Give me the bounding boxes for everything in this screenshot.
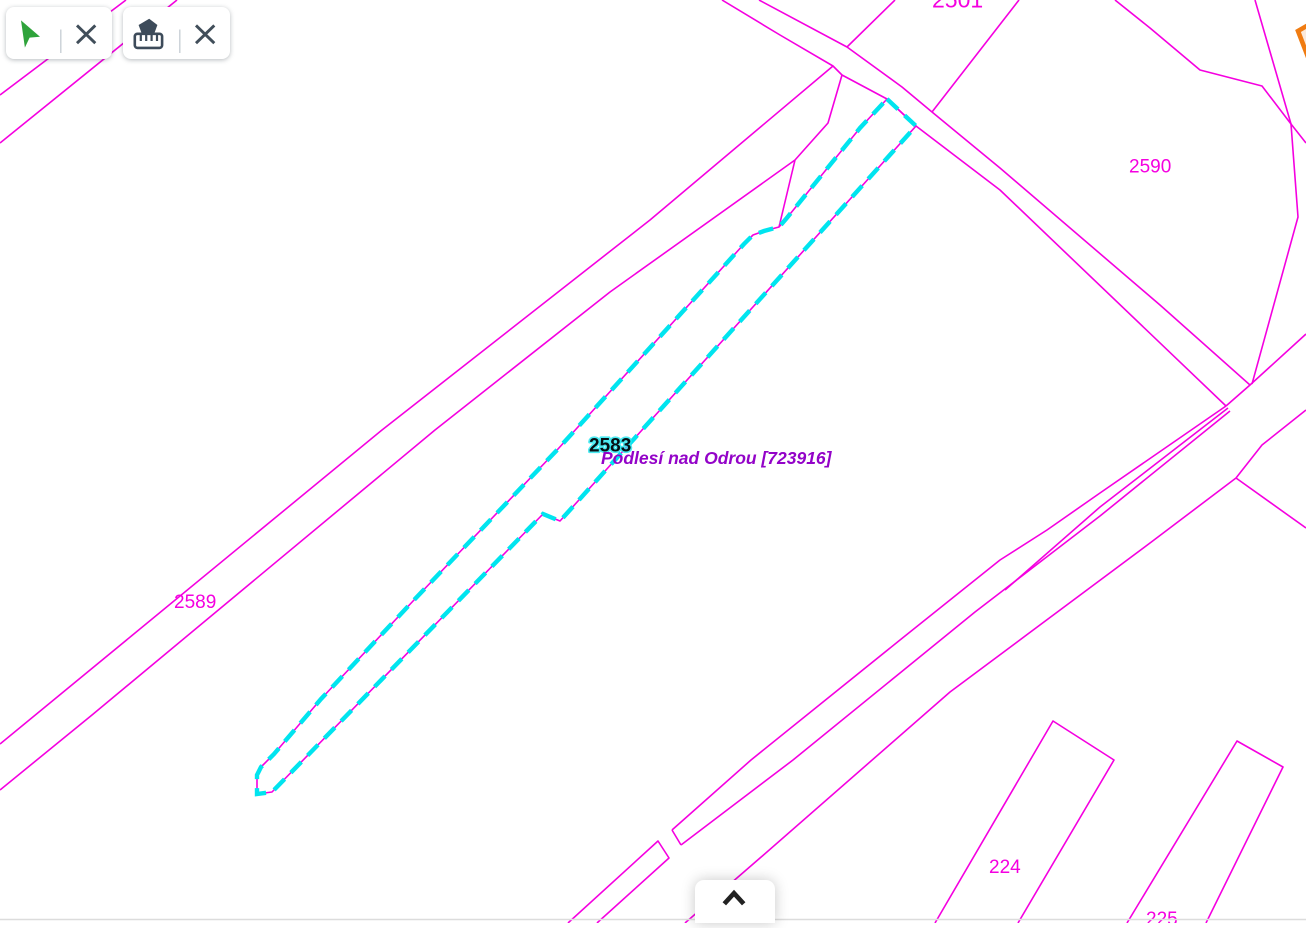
svg-text:Podlesí nad Odrou [723916]: Podlesí nad Odrou [723916] — [601, 448, 833, 468]
svg-text:2590: 2590 — [1129, 157, 1171, 178]
svg-text:225: 225 — [1146, 909, 1178, 923]
svg-text:2501: 2501 — [932, 0, 983, 13]
svg-text:2589: 2589 — [174, 592, 216, 613]
svg-text:224: 224 — [989, 857, 1021, 878]
